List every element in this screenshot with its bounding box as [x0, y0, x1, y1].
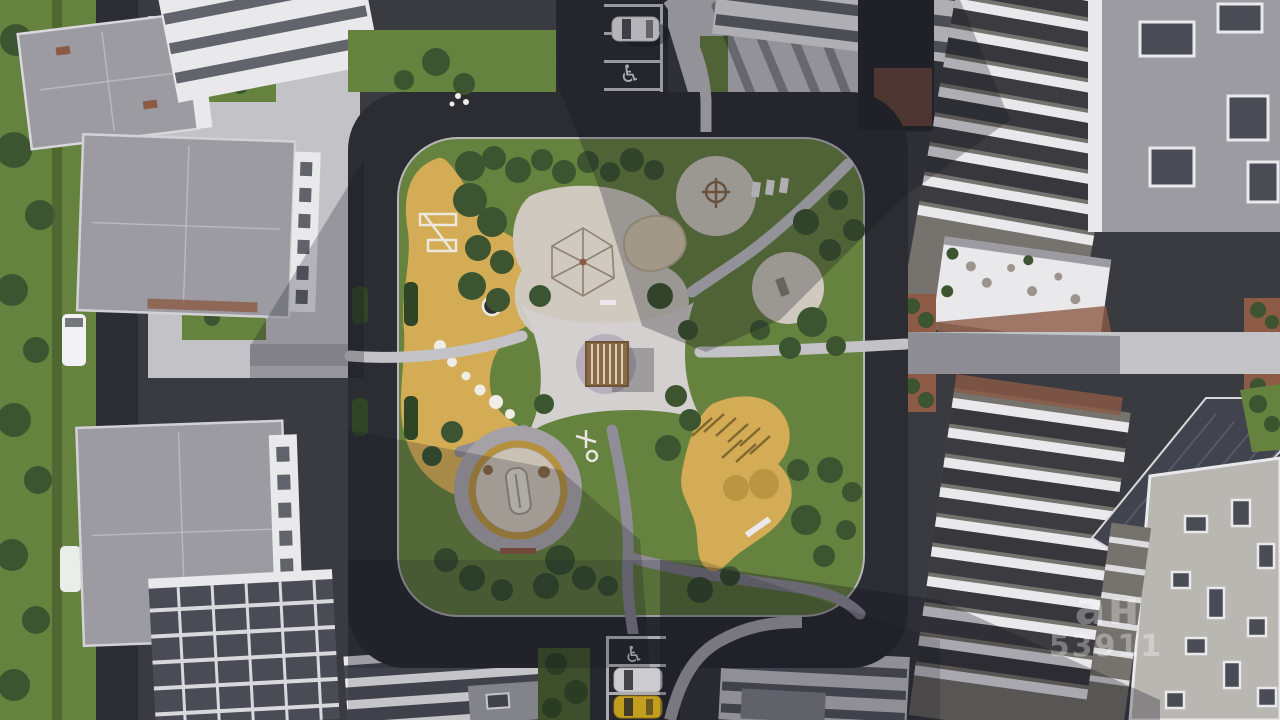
van-left-2 — [62, 314, 86, 366]
building-bottom-left-dark — [148, 569, 340, 720]
watermark-id-text: 53911 — [1049, 629, 1163, 664]
mound — [723, 475, 749, 501]
roof-bottom-right — [1130, 458, 1280, 720]
pergola — [586, 342, 654, 392]
aerial-render-stage: ♿ ♿ ан 53911 — [0, 0, 1280, 720]
van-left-3 — [60, 546, 81, 592]
mound — [749, 469, 779, 499]
watermark-logo-text: ан — [1075, 581, 1142, 635]
aerial-render: ♿ ♿ ан 53911 — [0, 0, 1280, 720]
roof-top-right — [1088, 0, 1280, 232]
bench — [600, 300, 616, 305]
